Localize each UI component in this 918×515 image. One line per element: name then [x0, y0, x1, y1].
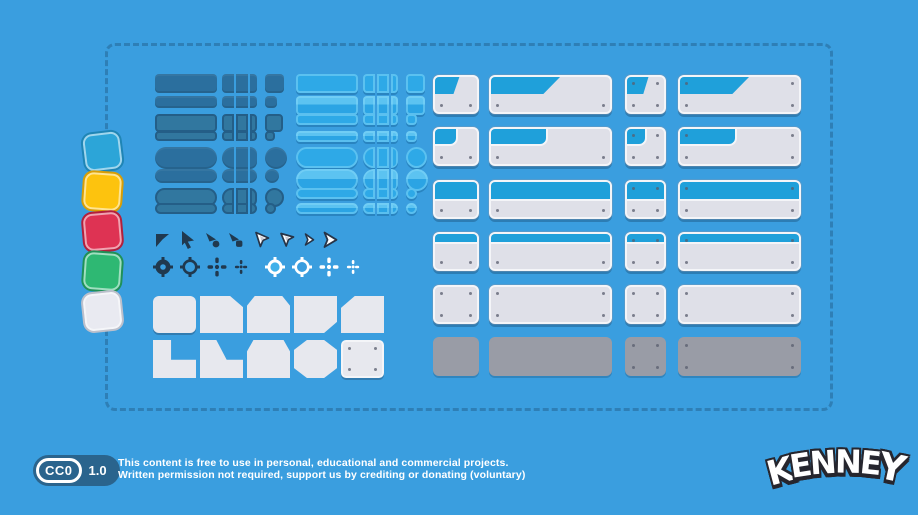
button-cap-left: [222, 203, 234, 214]
screw-dot: [469, 209, 472, 212]
button-cap-left: [363, 131, 375, 142]
screw-dot: [632, 292, 635, 295]
dark-button-row: [155, 74, 284, 93]
button-bar: [296, 203, 358, 214]
button-middle: [377, 96, 389, 115]
dark-button-row: [155, 131, 275, 141]
button-cap-left: [363, 96, 375, 115]
screw-dot: [656, 261, 659, 264]
screw-dot: [791, 261, 794, 264]
screw-dot: [685, 156, 688, 159]
screw-dot: [656, 209, 659, 212]
light-button-row: [296, 96, 425, 115]
screw-dot: [656, 239, 659, 242]
panel-header-full: [680, 182, 799, 201]
button-bar: [155, 114, 217, 132]
screw-dot: [440, 209, 443, 212]
small-panel: [625, 180, 666, 219]
screw-dot: [440, 261, 443, 264]
button-cap-left: [363, 74, 375, 93]
screw-dot: [656, 156, 659, 159]
screw-dot: [791, 366, 794, 369]
button-square: [265, 74, 284, 93]
screw-dot: [440, 314, 443, 317]
button-cap-right: [250, 96, 257, 108]
button-square: [406, 74, 425, 93]
screw-dot: [685, 344, 688, 347]
screw-dot: [602, 292, 605, 295]
button-cap-right: [250, 74, 257, 93]
panel-header-tab: [491, 129, 548, 146]
panel-header-tab: [627, 129, 647, 146]
screw-dot: [632, 366, 635, 369]
screw-dot: [496, 292, 499, 295]
panel-header-diagonal: [491, 77, 610, 94]
small-panel: [625, 75, 666, 114]
button-bar: [155, 131, 217, 141]
screw-dot: [440, 292, 443, 295]
light-button-row: [296, 131, 417, 142]
button-bar: [155, 74, 217, 93]
screwed-square-panel-shape: [341, 340, 384, 378]
button-middle: [236, 147, 248, 169]
light-button-row: [296, 74, 425, 93]
button-bar: [296, 188, 358, 199]
button-square: [265, 96, 277, 108]
button-cap-left: [222, 114, 234, 132]
gray-small-panel: [433, 337, 479, 376]
button-cap-left: [363, 188, 375, 199]
red-swatch: [82, 211, 122, 251]
cut-top-corners-panel-shape: [247, 296, 290, 333]
button-bar: [296, 147, 358, 168]
kenney-logo: KENNEY: [765, 439, 916, 487]
screw-dot: [656, 187, 659, 190]
screw-dot: [602, 156, 605, 159]
button-cap-left: [363, 147, 375, 168]
button-bar: [155, 169, 217, 183]
plus-crosshair-dark-icon: [206, 256, 228, 278]
button-middle: [236, 114, 248, 132]
corner-cursor-square-icon: [226, 229, 244, 251]
dark-button-row: [155, 114, 283, 132]
small-panel: [433, 180, 479, 219]
button-middle: [236, 131, 248, 141]
button-cap-right: [391, 188, 398, 199]
button-middle: [236, 203, 248, 214]
screw-dot: [496, 261, 499, 264]
panel-header-full: [491, 182, 610, 201]
panel-header-diagonal: [680, 77, 799, 94]
panel-header-strip: [680, 234, 799, 244]
button-cap-left: [363, 203, 375, 214]
screw-dot: [791, 239, 794, 242]
wide-panel: [678, 232, 801, 271]
octagon-panel-shape: [294, 340, 337, 378]
button-cap-right: [250, 131, 257, 141]
button-square: [265, 114, 283, 132]
wide-panel: [678, 285, 801, 324]
screw-dot: [440, 104, 443, 107]
small-panel: [625, 232, 666, 271]
arrow-cursor-icon: [178, 229, 198, 251]
screw-dot: [656, 366, 659, 369]
kite-pointer-alt-icon: [277, 229, 297, 251]
dark-button-row: [155, 203, 276, 214]
button-middle: [377, 147, 389, 168]
wide-panel: [678, 75, 801, 114]
screw-dot: [656, 104, 659, 107]
blue-swatch: [82, 131, 123, 172]
screw-dot: [632, 239, 635, 242]
button-middle: [377, 74, 389, 93]
screw-dot: [685, 366, 688, 369]
gray-wide-panel: [678, 337, 801, 376]
panel-header-strip: [435, 234, 477, 244]
screw-dot: [602, 209, 605, 212]
screw-dot: [685, 239, 688, 242]
screw-dot: [602, 314, 605, 317]
wide-panel: [489, 127, 612, 166]
screw-dot: [602, 104, 605, 107]
panel-header-diagonal: [627, 77, 664, 94]
screw-dot: [496, 104, 499, 107]
plus-crosshair-small-white-icon: [345, 256, 361, 278]
button-bar: [155, 147, 217, 169]
button-bar: [155, 96, 217, 108]
wide-panel: [489, 75, 612, 114]
screw-dot: [632, 187, 635, 190]
dark-button-row: [155, 169, 279, 183]
button-middle: [236, 169, 248, 183]
target-ring-white-icon: [291, 256, 313, 278]
screw-dot: [602, 261, 605, 264]
cc0-version: 1.0: [89, 463, 107, 478]
screw-dot: [632, 314, 635, 317]
light-button-row: [296, 114, 417, 125]
screw-dot: [469, 104, 472, 107]
yellow-swatch: [83, 172, 122, 211]
button-bar: [296, 96, 358, 115]
button-middle: [377, 188, 389, 199]
button-bar: [155, 203, 217, 214]
white-swatch: [82, 291, 123, 332]
crosshair-icons-row: [152, 256, 361, 278]
button-square: [406, 114, 417, 125]
screw-dot: [791, 187, 794, 190]
button-cap-left: [222, 147, 234, 169]
button-square: [265, 131, 275, 141]
wide-panel: [489, 232, 612, 271]
screw-dot: [656, 292, 659, 295]
screw-dot: [791, 134, 794, 137]
small-panel: [625, 285, 666, 324]
green-swatch: [83, 252, 122, 291]
screw-dot: [496, 314, 499, 317]
panel-header-diagonal: [435, 77, 477, 94]
button-circle: [406, 147, 427, 168]
screw-dot: [791, 314, 794, 317]
light-button-row: [296, 203, 417, 214]
screw-dot: [685, 134, 688, 137]
screw-dot: [496, 209, 499, 212]
button-cap-left: [222, 131, 234, 141]
button-cap-right: [391, 131, 398, 142]
screw-dot: [469, 292, 472, 295]
screw-dot: [685, 314, 688, 317]
button-cap-right: [250, 169, 257, 183]
screw-dot: [632, 344, 635, 347]
screw-dot: [685, 292, 688, 295]
small-panel: [433, 75, 479, 114]
dark-button-row: [155, 147, 287, 169]
corner-cursor-dot-icon: [203, 229, 221, 251]
button-cap-left: [222, 74, 234, 93]
button-circle: [406, 188, 417, 199]
screw-dot: [632, 261, 635, 264]
button-cap-left: [222, 96, 234, 108]
screw-dot: [632, 156, 635, 159]
screw-dot: [791, 104, 794, 107]
dart-cursor-small-icon: [302, 229, 316, 251]
button-cap-right: [250, 203, 257, 214]
screw-dot: [656, 82, 659, 85]
wide-panel: [678, 127, 801, 166]
panel-header-full: [627, 182, 664, 201]
screw-dot: [469, 156, 472, 159]
button-bar: [296, 114, 358, 125]
small-panel: [625, 127, 666, 166]
target-ring-dark-icon: [179, 256, 201, 278]
small-panel: [433, 285, 479, 324]
license-line-2: Written permission not required, support…: [118, 469, 525, 481]
screw-dot: [685, 104, 688, 107]
license-line-1: This content is free to use in personal,…: [118, 457, 525, 469]
button-cap-right: [250, 147, 257, 169]
button-cap-right: [391, 203, 398, 214]
dark-buttons-section: [155, 74, 290, 226]
small-panel: [433, 232, 479, 271]
screw-dot: [632, 209, 635, 212]
button-square: [406, 131, 417, 142]
plus-crosshair-small-dark-icon: [233, 256, 249, 278]
screw-dot: [685, 209, 688, 212]
panel-header-strip: [491, 234, 610, 244]
button-middle: [377, 114, 389, 125]
button-bar: [296, 131, 358, 142]
panel-header-tab: [680, 129, 737, 146]
panel-header-tab: [435, 129, 458, 146]
button-cap-right: [250, 114, 257, 132]
cc0-badge: CC0 1.0: [33, 455, 120, 486]
target-gear-blue-icon: [264, 256, 286, 278]
screw-dot: [440, 156, 443, 159]
screw-dot: [791, 209, 794, 212]
button-cap-left: [222, 169, 234, 183]
button-middle: [236, 96, 248, 108]
button-cap-left: [363, 114, 375, 125]
button-circle: [265, 169, 279, 183]
screw-dot: [791, 344, 794, 347]
target-gear-dark-icon: [152, 256, 174, 278]
flag-cursor-icon: [153, 229, 173, 251]
dart-cursor-large-icon: [321, 229, 339, 251]
screw-dot: [656, 134, 659, 137]
button-circle: [265, 203, 276, 214]
gray-wide-panel: [489, 337, 612, 376]
screw-dot: [791, 292, 794, 295]
button-cap-right: [391, 147, 398, 168]
screw-dot: [632, 134, 635, 137]
cc0-label: CC0: [36, 458, 82, 483]
button-square: [406, 96, 425, 115]
plus-crosshair-white-icon: [318, 256, 340, 278]
screw-dot: [469, 261, 472, 264]
screw-dot: [656, 314, 659, 317]
square-panel-shape: [153, 296, 196, 333]
screw-dot: [469, 314, 472, 317]
light-buttons-section: [296, 74, 431, 226]
screw-dot: [791, 156, 794, 159]
screw-dot: [496, 156, 499, 159]
screw-dot: [791, 82, 794, 85]
license-text: This content is free to use in personal,…: [118, 457, 525, 481]
asset-sheet: CC0 1.0 This content is free to use in p…: [0, 0, 918, 515]
wide-panel: [678, 180, 801, 219]
wide-panel: [489, 180, 612, 219]
panel-header-full: [435, 182, 477, 201]
screw-dot: [685, 82, 688, 85]
screw-dot: [656, 344, 659, 347]
button-cap-right: [391, 74, 398, 93]
screw-dot: [685, 187, 688, 190]
button-cap-right: [391, 114, 398, 125]
beveled-top-panel-shape: [247, 340, 290, 378]
screw-dot: [685, 261, 688, 264]
button-circle: [406, 203, 417, 214]
button-circle: [265, 147, 287, 169]
light-button-row: [296, 188, 417, 199]
small-panel: [433, 127, 479, 166]
cursor-icons-row: [153, 229, 339, 251]
button-middle: [377, 203, 389, 214]
dark-button-row: [155, 96, 277, 108]
wide-panel: [489, 285, 612, 324]
button-middle: [236, 74, 248, 93]
screw-dot: [632, 104, 635, 107]
kite-pointer-icon: [252, 229, 272, 251]
button-middle: [377, 131, 389, 142]
button-bar: [296, 74, 358, 93]
gray-small-panel: [625, 337, 666, 376]
button-cap-right: [391, 96, 398, 115]
screw-dot: [632, 82, 635, 85]
light-button-row: [296, 147, 427, 168]
